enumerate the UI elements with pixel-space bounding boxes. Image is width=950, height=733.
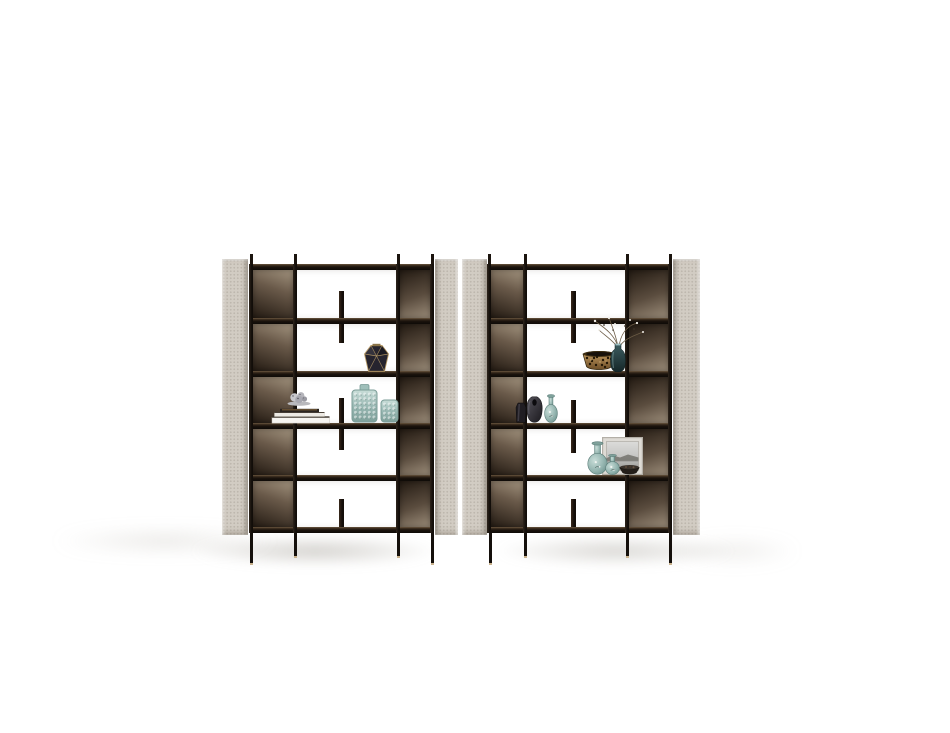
book-stack <box>271 404 331 424</box>
teal-gourd-vase-a <box>544 394 558 423</box>
product-photo-scene <box>0 0 950 733</box>
dark-bowl <box>619 464 640 475</box>
dried-flower-vase <box>585 316 645 372</box>
decor-objects <box>0 0 950 733</box>
teal-textured-vase-tall <box>351 384 378 423</box>
teal-gourd-vase-c <box>605 454 620 475</box>
silver-sculpture <box>284 390 314 406</box>
charcoal-vase <box>526 396 543 423</box>
faceted-vase <box>363 343 390 372</box>
teal-textured-vase-short <box>380 398 399 423</box>
